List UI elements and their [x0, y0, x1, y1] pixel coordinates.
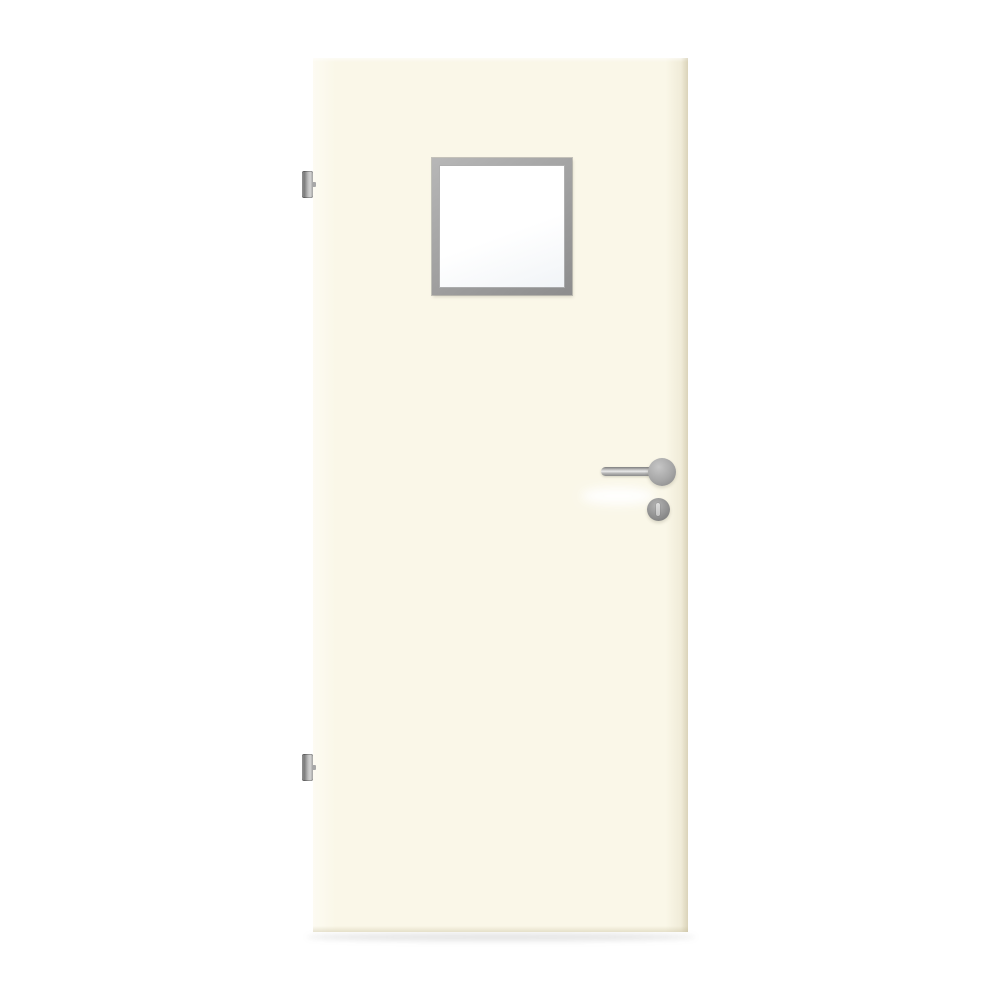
door-edge-shade-bottom	[313, 926, 688, 932]
door-leaf	[313, 58, 688, 932]
product-image-stage	[0, 0, 1000, 1000]
door-face-glare	[581, 487, 655, 505]
vision-panel-frame	[432, 158, 572, 295]
keyhole-slot	[656, 503, 660, 516]
door-edge-shade-right	[681, 58, 688, 932]
hinge-top-pin	[312, 182, 316, 187]
hinge-bottom-pin	[312, 765, 316, 770]
hinge-bottom	[302, 754, 313, 781]
floor-shadow	[306, 933, 696, 941]
key-escutcheon	[647, 498, 670, 521]
hinge-top	[302, 171, 313, 198]
handle-rose	[648, 458, 676, 486]
vision-panel-glass	[439, 165, 565, 288]
door-edge-highlight-top	[313, 58, 688, 62]
